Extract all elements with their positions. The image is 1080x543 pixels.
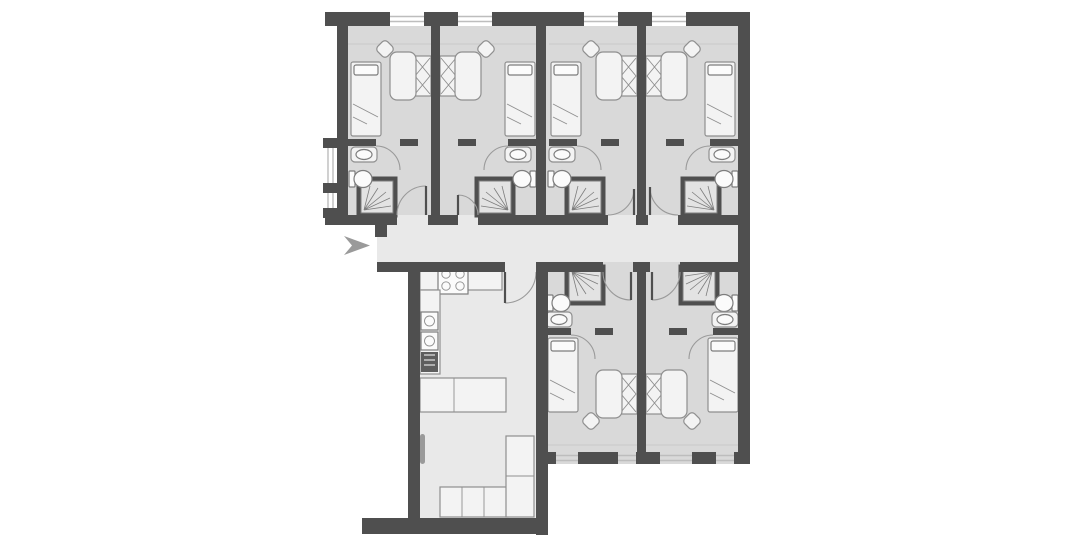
sink [546, 312, 572, 327]
window [652, 12, 686, 26]
sink [712, 312, 738, 327]
window [328, 148, 333, 208]
bathroom-partition [710, 139, 738, 146]
shower [569, 181, 601, 213]
bar-counter [420, 378, 506, 412]
bed [551, 62, 581, 136]
sink [505, 147, 531, 162]
entrance-arrow-icon [344, 236, 370, 255]
toilet [349, 171, 372, 188]
floor-plan-drawing [0, 0, 1080, 543]
side-door-leaf [420, 434, 425, 464]
window [584, 12, 618, 26]
shower [685, 181, 717, 213]
window [458, 12, 492, 26]
sink [709, 147, 735, 162]
bathroom-partition [348, 139, 376, 146]
bathroom-partition [601, 139, 619, 146]
bathroom-partition [713, 328, 739, 335]
bathroom-partition [666, 139, 684, 146]
bathroom-partition [595, 328, 613, 335]
shower [683, 269, 715, 301]
toilet [715, 295, 738, 312]
bed [705, 62, 735, 136]
sink [351, 147, 377, 162]
bathroom-partition [458, 139, 476, 146]
toilet [548, 171, 571, 188]
bathroom-partition [669, 328, 687, 335]
toilet [547, 295, 570, 312]
bathroom-partition [545, 328, 571, 335]
window [390, 12, 424, 26]
floor-plan-page [0, 0, 1080, 543]
bed [505, 62, 535, 136]
bathroom-partition [508, 139, 536, 146]
bathroom-partition [549, 139, 577, 146]
sofa-seat [440, 487, 508, 517]
bed [708, 338, 738, 412]
kitchen-sink [421, 332, 438, 350]
shower [479, 181, 511, 213]
bed [351, 62, 381, 136]
toilet [715, 171, 738, 188]
kitchen-sink [421, 312, 438, 330]
shower [569, 269, 601, 301]
sink [549, 147, 575, 162]
bathroom-partition [400, 139, 418, 146]
sofa-chaise [506, 436, 534, 517]
toilet [513, 171, 536, 188]
bed [548, 338, 578, 412]
